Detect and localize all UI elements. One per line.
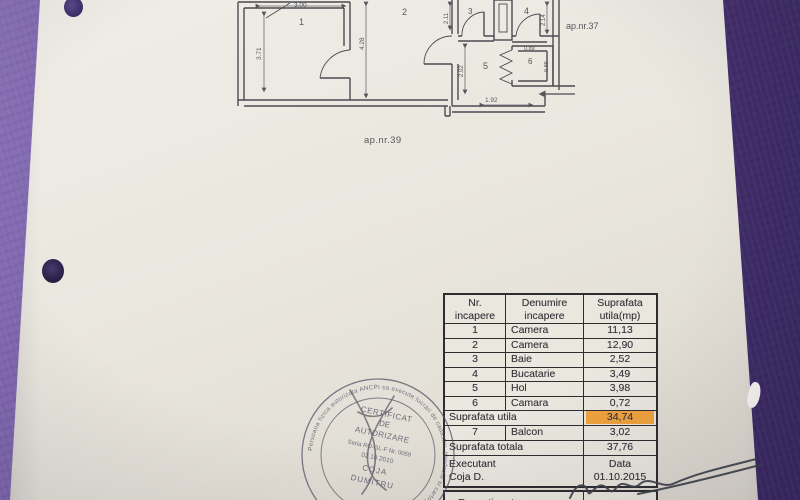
room-number-3: 3 xyxy=(468,7,473,16)
punch-hole-middle xyxy=(42,259,64,283)
row6-name: Camara xyxy=(506,397,583,411)
col-header-nr: Nr. incapere xyxy=(445,295,505,323)
row5-name: Hol xyxy=(506,382,583,396)
floor-plan-drawing: 3.00 3.71 4.28 2.11 2.14 2.02 0.89 0.89 … xyxy=(228,0,613,160)
apartment-label-37: ap.nr.37 xyxy=(566,21,599,31)
room-number-4: 4 xyxy=(524,6,529,16)
walls xyxy=(238,0,575,116)
dim-room6-height: 0.89 xyxy=(544,61,550,72)
balcon-area: 3,02 xyxy=(584,426,656,440)
balcon-name: Balcon xyxy=(506,426,583,440)
dim-top: 3.00 xyxy=(294,2,307,9)
row4-name: Bucatarie xyxy=(506,368,583,382)
subtotal-label: Suprafata utila xyxy=(445,411,583,425)
dim-room1-left: 3.71 xyxy=(256,47,263,60)
row1-name: Camera xyxy=(506,324,583,338)
apartment-label-39: ap.nr.39 xyxy=(364,135,402,146)
subtotal-highlight: 34,74 xyxy=(586,411,654,424)
row3-area: 2,52 xyxy=(584,353,656,367)
dim-room2-height: 4.28 xyxy=(359,37,366,50)
room-number-2: 2 xyxy=(402,7,407,17)
room-number-1: 1 xyxy=(299,17,304,27)
dim-room3-height: 2.11 xyxy=(444,12,450,24)
subtotal-value-cell: 34,74 xyxy=(584,411,656,425)
row4-area: 3,49 xyxy=(584,368,656,382)
col-header-denumire: Denumire incapere xyxy=(506,295,583,323)
stamp-center-text: CERTIFICAT DE AUTORIZARE Seria RO-GL-F N… xyxy=(340,403,420,493)
row3-name: Baie xyxy=(506,353,583,367)
room-number-5: 5 xyxy=(483,61,488,71)
row6-area: 0,72 xyxy=(584,397,656,411)
row2-nr: 2 xyxy=(445,339,505,353)
row2-area: 12,90 xyxy=(584,339,656,353)
row2-name: Camera xyxy=(506,339,583,353)
row1-area: 11,13 xyxy=(584,324,656,338)
dim-entry-width: 1.92 xyxy=(485,97,498,104)
dim-room4-height: 2.14 xyxy=(541,14,547,26)
certification-stamp: Persoana fizica autorizata ANCPI sa exec… xyxy=(292,372,464,500)
dim-room6-width: 0.89 xyxy=(524,46,535,52)
col-header-suprafata: Suprafata utila(mp) xyxy=(584,295,656,323)
dim-room5-height: 2.02 xyxy=(459,65,465,77)
handwritten-signature xyxy=(520,440,780,500)
room-number-6: 6 xyxy=(528,57,533,66)
row5-area: 3,98 xyxy=(584,382,656,396)
row3-nr: 3 xyxy=(445,353,505,367)
row1-nr: 1 xyxy=(445,324,505,338)
photo-of-document: 3.00 3.71 4.28 2.11 2.14 2.02 0.89 0.89 … xyxy=(0,0,800,500)
